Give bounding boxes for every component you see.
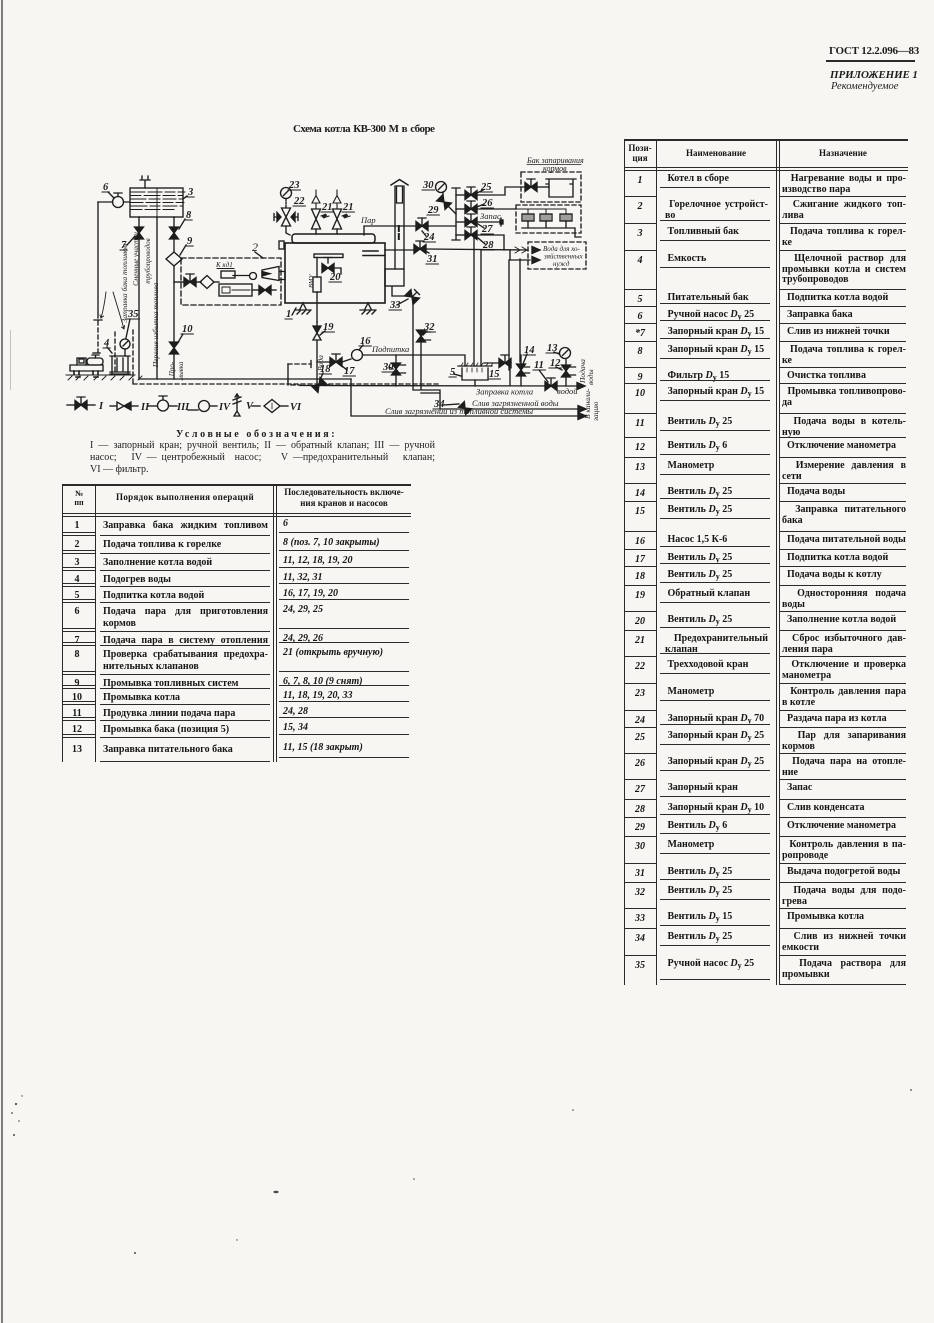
svg-text:14: 14 <box>524 345 535 356</box>
svg-text:21: 21 <box>321 202 333 213</box>
svg-text:33: 33 <box>389 300 401 311</box>
svg-text:Про-: Про- <box>168 361 176 377</box>
svg-text:I: I <box>98 401 104 412</box>
svg-text:8: 8 <box>186 210 192 221</box>
svg-text:27: 27 <box>481 224 493 235</box>
svg-text:30: 30 <box>382 362 394 373</box>
svg-text:9: 9 <box>187 236 193 247</box>
svg-text:Заправка котла: Заправка котла <box>476 387 533 397</box>
svg-text:23: 23 <box>288 180 300 191</box>
svg-text:22: 22 <box>293 196 305 207</box>
svg-text:трубопроводов: трубопроводов <box>144 238 152 283</box>
svg-text:4: 4 <box>103 338 109 349</box>
svg-text:Запас: Запас <box>480 211 501 221</box>
svg-text:28: 28 <box>482 240 494 251</box>
svg-text:Перелив избытка топлива: Перелив избытка топлива <box>151 282 160 368</box>
svg-text:21: 21 <box>342 202 354 213</box>
svg-text:15: 15 <box>489 369 500 380</box>
svg-text:32: 32 <box>423 322 435 333</box>
svg-text:29: 29 <box>427 205 439 216</box>
svg-text:Сменные участки: Сменные участки <box>132 232 140 286</box>
svg-text:10: 10 <box>182 324 193 335</box>
svg-text:водой: водой <box>557 386 578 396</box>
svg-text:16: 16 <box>360 336 371 347</box>
svg-text:Подпитка: Подпитка <box>371 344 409 354</box>
svg-text:1: 1 <box>286 309 291 320</box>
svg-text:II: II <box>140 402 150 413</box>
svg-text:Слив загрязнений из топливной: Слив загрязнений из топливной системы <box>385 406 533 416</box>
svg-text:III: III <box>176 402 190 413</box>
svg-text:кормов: кормов <box>543 164 567 173</box>
svg-text:воды: воды <box>586 369 595 385</box>
svg-text:31: 31 <box>426 254 438 265</box>
svg-text:20: 20 <box>329 272 341 283</box>
svg-text:зацию: зацию <box>591 401 600 422</box>
svg-text:30: 30 <box>422 180 434 191</box>
svg-text:3: 3 <box>187 187 193 198</box>
svg-text:ВМУ: ВМУ <box>308 273 315 288</box>
svg-text:17: 17 <box>344 366 355 377</box>
svg-text:35: 35 <box>127 309 139 320</box>
svg-text:К кд1: К кд1 <box>215 261 233 269</box>
svg-text:Пар: Пар <box>360 215 376 225</box>
svg-text:5: 5 <box>450 367 455 378</box>
svg-text:26: 26 <box>481 198 493 209</box>
svg-text:IV: IV <box>218 402 231 413</box>
svg-text:VI: VI <box>290 402 302 413</box>
svg-text:нужд: нужд <box>553 260 570 268</box>
